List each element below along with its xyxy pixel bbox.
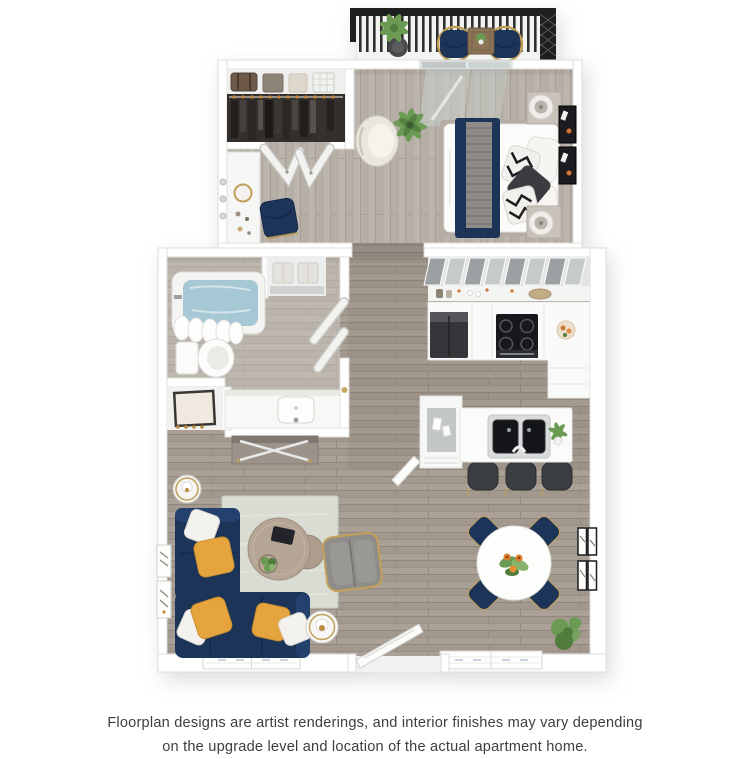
bathtub: [172, 272, 265, 344]
disclaimer-text: Floorplan designs are artist renderings,…: [0, 711, 750, 759]
bathroom-vanity: [225, 390, 340, 428]
nightstand-bottom: [527, 206, 561, 238]
disclaimer-line-2: on the upgrade level and location of the…: [162, 739, 588, 755]
window-dining: [440, 651, 542, 669]
x-frame-console: [232, 436, 318, 464]
gray-armchair: [322, 532, 383, 592]
floorplan-svg: [0, 0, 750, 690]
bed-striped-throw: [466, 122, 492, 228]
desk-chair: [259, 197, 299, 238]
balcony-chair-left: [438, 27, 472, 61]
vanity-desk: [227, 152, 260, 243]
food-plate: [557, 321, 575, 339]
doorway-shadow: [352, 243, 424, 257]
side-table-top: [173, 475, 201, 503]
leaning-mirror: [174, 391, 215, 426]
balcony-table: [468, 28, 494, 54]
floorplan-rendering: [0, 0, 750, 690]
toilet: [176, 339, 234, 377]
closet-boxes: [231, 73, 334, 92]
disclaimer-line-1: Floorplan designs are artist renderings,…: [107, 715, 642, 731]
linen-closet: [167, 387, 222, 430]
balcony: [350, 8, 556, 66]
living-wall-frames: [157, 545, 171, 618]
island-double-sink: [488, 415, 550, 458]
door-knob: [342, 387, 348, 393]
towel-shelf: [268, 257, 326, 296]
nightstand-top: [527, 92, 561, 124]
cooktop-stove: [496, 314, 538, 358]
side-table-bottom: [306, 611, 338, 643]
back-counter: [428, 286, 590, 301]
accent-chair: [356, 116, 398, 166]
tub-faucet: [174, 295, 182, 299]
gold-mirror: [235, 185, 252, 202]
